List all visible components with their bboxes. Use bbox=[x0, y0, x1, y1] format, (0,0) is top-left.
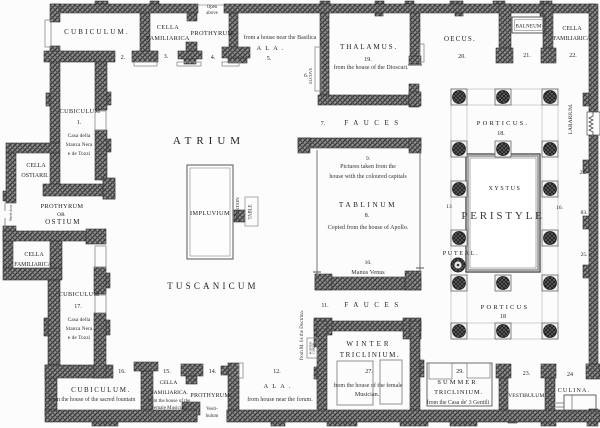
svg-text:PROTHYRUM: PROTHYRUM bbox=[41, 203, 84, 210]
svg-text:ATRIUM: ATRIUM bbox=[173, 135, 245, 147]
svg-text:21.: 21. bbox=[523, 53, 531, 59]
svg-text:OECUS.: OECUS. bbox=[444, 35, 476, 43]
svg-text:TUSCANICUM: TUSCANICUM bbox=[167, 281, 259, 291]
svg-text:Casa della: Casa della bbox=[68, 317, 91, 323]
svg-text:Stanza Nera: Stanza Nera bbox=[66, 142, 93, 148]
svg-text:18.: 18. bbox=[497, 131, 505, 137]
svg-text:TRICLINIUM.: TRICLINIUM. bbox=[340, 351, 401, 359]
svg-text:PROTHYRUM.: PROTHYRUM. bbox=[190, 393, 231, 399]
svg-text:IMPLUVIUM: IMPLUVIUM bbox=[190, 210, 230, 217]
svg-text:FAMILIARICA: FAMILIARICA bbox=[146, 35, 190, 42]
svg-text:Vesti-: Vesti- bbox=[206, 407, 218, 412]
svg-text:CHECK: CHECK bbox=[312, 342, 316, 354]
svg-text:Female Musician: Female Musician bbox=[151, 406, 186, 411]
svg-text:ALCOVE: ALCOVE bbox=[308, 67, 313, 84]
svg-text:CELLA: CELLA bbox=[157, 24, 179, 31]
svg-text:e de Tozzi: e de Tozzi bbox=[68, 151, 91, 157]
svg-text:FAMILIARICA: FAMILIARICA bbox=[553, 36, 591, 42]
svg-text:Copied from the house of Apoll: Copied from the house of Apollo. bbox=[328, 224, 409, 231]
svg-text:from house near the forum.: from house near the forum. bbox=[247, 396, 313, 403]
svg-text:above: above bbox=[206, 11, 217, 16]
svg-text:4.: 4. bbox=[211, 55, 216, 61]
svg-text:CELLA: CELLA bbox=[160, 380, 178, 386]
svg-text:XYSTUS: XYSTUS bbox=[489, 186, 522, 192]
svg-text:23.: 23. bbox=[580, 170, 588, 176]
svg-text:17.: 17. bbox=[74, 304, 82, 310]
svg-text:Casa della: Casa della bbox=[68, 133, 91, 139]
svg-text:2.: 2. bbox=[121, 55, 126, 61]
svg-text:3.: 3. bbox=[164, 54, 169, 60]
svg-text:CUBICULUM.: CUBICULUM. bbox=[71, 386, 131, 394]
svg-text:CULINA.: CULINA. bbox=[558, 388, 591, 394]
svg-text:PORTICUS.: PORTICUS. bbox=[477, 120, 529, 127]
svg-text:FAMILIARICA.: FAMILIARICA. bbox=[151, 390, 189, 396]
svg-text:16.: 16. bbox=[556, 205, 564, 211]
svg-text:Stanza Nera: Stanza Nera bbox=[66, 326, 93, 332]
svg-text:12.: 12. bbox=[273, 369, 281, 375]
svg-text:PUTEAL.: PUTEAL. bbox=[443, 250, 479, 257]
svg-text:14.: 14. bbox=[209, 369, 217, 375]
svg-text:Pictures taken from the: Pictures taken from the bbox=[340, 163, 396, 170]
svg-text:8.: 8. bbox=[365, 213, 370, 219]
svg-text:PORTICUS: PORTICUS bbox=[481, 304, 530, 311]
svg-text:TABLE: TABLE bbox=[249, 204, 254, 219]
svg-text:PROTHYRUM: PROTHYRUM bbox=[191, 30, 234, 37]
svg-text:CUBICULUM.: CUBICULUM. bbox=[64, 28, 130, 36]
svg-text:VESTIBULUM.: VESTIBULUM. bbox=[508, 393, 546, 399]
svg-text:from the house of the sacred f: from the house of the sacred fountain bbox=[49, 396, 136, 403]
svg-text:29.: 29. bbox=[456, 369, 464, 375]
svg-text:from a house near the Basilica: from a house near the Basilica bbox=[244, 34, 317, 41]
svg-text:ALA.: ALA. bbox=[257, 45, 288, 52]
svg-text:bulum: bulum bbox=[206, 414, 219, 419]
svg-text:20.: 20. bbox=[458, 54, 466, 60]
svg-text:PERISTYLE: PERISTYLE bbox=[461, 210, 544, 222]
svg-text:FOUNTAIN: FOUNTAIN bbox=[235, 197, 240, 221]
svg-text:house with the coloured capita: house with the coloured capitals bbox=[329, 174, 407, 180]
svg-text:FAMILIARICA: FAMILIARICA bbox=[14, 262, 52, 268]
svg-text:1.: 1. bbox=[77, 120, 82, 126]
svg-text:19.: 19. bbox=[364, 57, 372, 63]
svg-text:THALAMUS.: THALAMUS. bbox=[340, 43, 398, 51]
svg-text:11.: 11. bbox=[321, 303, 329, 309]
svg-text:13: 13 bbox=[446, 204, 452, 210]
svg-text:FAUCES: FAUCES bbox=[344, 301, 403, 309]
svg-text:16.: 16. bbox=[118, 369, 126, 375]
svg-text:ALA.: ALA. bbox=[264, 383, 295, 390]
svg-text:23.: 23. bbox=[523, 371, 531, 377]
svg-text:TABLINUM: TABLINUM bbox=[339, 201, 397, 209]
svg-text:7.: 7. bbox=[321, 121, 326, 127]
svg-text:15.: 15. bbox=[163, 369, 171, 375]
svg-text:27.: 27. bbox=[365, 369, 373, 375]
svg-text:25.: 25. bbox=[581, 252, 589, 258]
svg-text:18: 18 bbox=[500, 314, 506, 320]
svg-text:TRICLINIUM.: TRICLINIUM. bbox=[434, 389, 483, 396]
svg-text:5.: 5. bbox=[267, 56, 272, 62]
svg-text:from the Casa de' 3 Gentili: from the Casa de' 3 Gentili bbox=[427, 399, 490, 406]
svg-text:CUBICULUM: CUBICULUM bbox=[59, 291, 100, 298]
svg-text:10.: 10. bbox=[365, 260, 373, 266]
svg-text:9.: 9. bbox=[366, 156, 371, 162]
svg-text:CUBICULUM: CUBICULUM bbox=[60, 108, 101, 115]
svg-text:6.: 6. bbox=[304, 73, 309, 79]
svg-text:CELLA: CELLA bbox=[26, 163, 46, 169]
svg-text:from the house of the: from the house of the bbox=[148, 399, 192, 404]
svg-text:SUMMER: SUMMER bbox=[437, 379, 477, 386]
svg-text:22.: 22. bbox=[569, 53, 577, 59]
svg-text:Manus Venus: Manus Venus bbox=[351, 269, 385, 276]
svg-text:e de Tozzi: e de Tozzi bbox=[68, 335, 91, 341]
svg-text:OSTIUM: OSTIUM bbox=[45, 218, 81, 226]
svg-text:CELLA: CELLA bbox=[24, 252, 44, 258]
svg-text:Musician.: Musician. bbox=[355, 391, 380, 398]
svg-text:from the house of the female: from the house of the female bbox=[333, 382, 402, 389]
svg-text:83.: 83. bbox=[581, 210, 589, 216]
svg-text:WINTER: WINTER bbox=[346, 340, 391, 348]
svg-text:OSTIARII.: OSTIARII. bbox=[21, 173, 49, 179]
svg-text:CELLA: CELLA bbox=[562, 26, 582, 32]
svg-text:LARARIUM.: LARARIUM. bbox=[568, 103, 574, 134]
svg-text:24: 24 bbox=[567, 372, 573, 378]
svg-text:Open: Open bbox=[207, 5, 218, 10]
svg-text:from M. lis the Doctrina.: from M. lis the Doctrina. bbox=[300, 310, 305, 360]
svg-text:BALNEUM: BALNEUM bbox=[515, 25, 541, 30]
svg-text:Street door: Street door bbox=[9, 204, 13, 221]
svg-text:from the house of the Dioscuri: from the house of the Dioscuri. bbox=[334, 64, 409, 71]
svg-text:FAUCES: FAUCES bbox=[344, 119, 403, 127]
